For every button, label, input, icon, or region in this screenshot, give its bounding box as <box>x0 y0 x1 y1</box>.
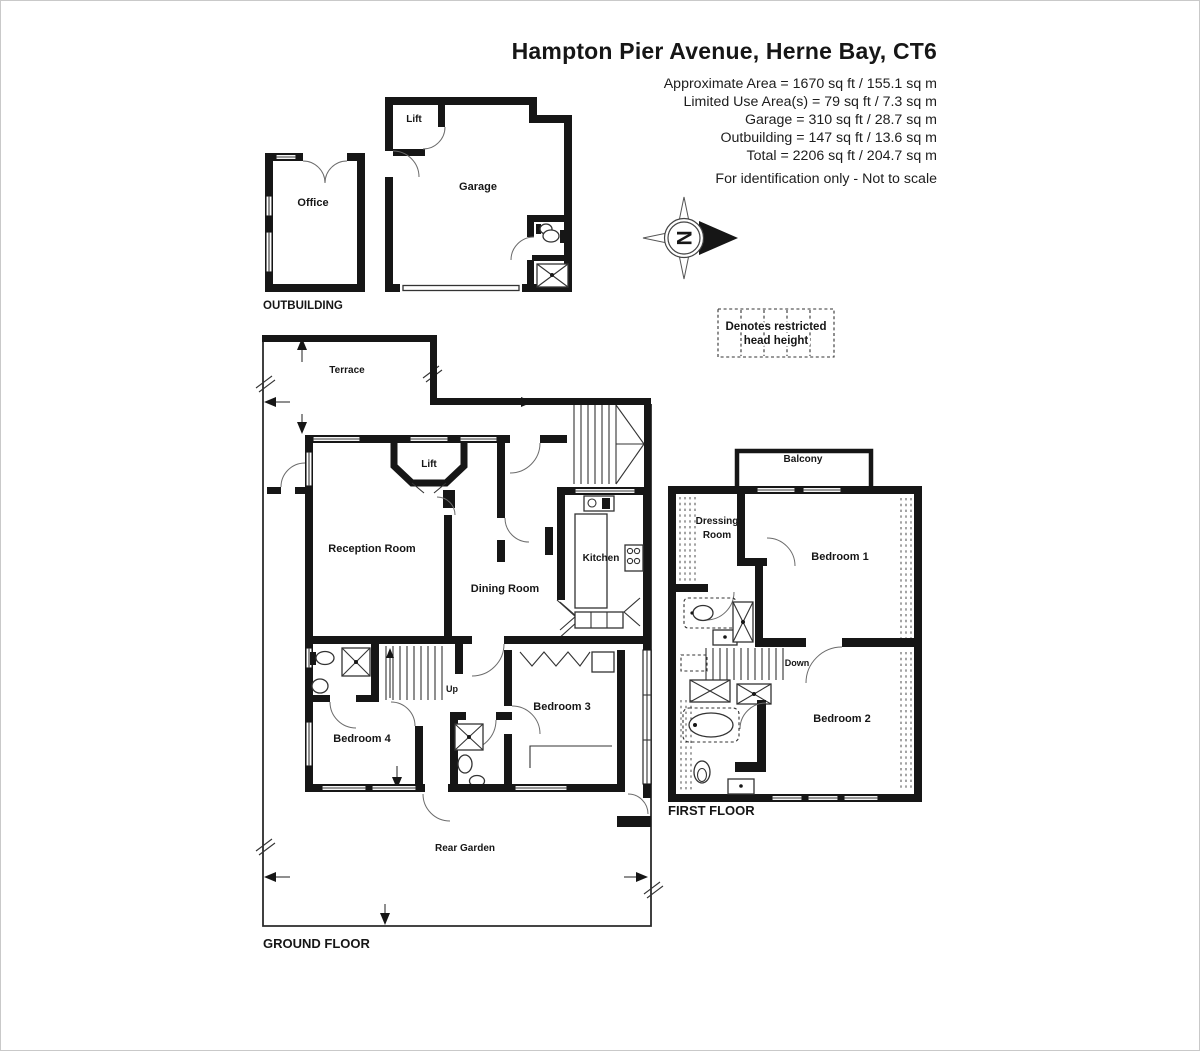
room-label-garage-lift: Lift <box>406 114 422 125</box>
room-label-balcony: Balcony <box>784 454 823 465</box>
bedroom2-area: Bedroom 2 <box>735 652 911 788</box>
garage-plan: Lift Garage <box>385 97 572 292</box>
bedroom3-area: Bedroom 3 <box>458 650 625 792</box>
bedroom4-area: Bedroom 4 <box>305 702 425 792</box>
room-label-bedroom4: Bedroom 4 <box>333 733 391 745</box>
legend-text-line2: head height <box>744 335 809 347</box>
first-floor-plan: Balcony Dressing Ro <box>668 451 922 818</box>
down-stairs: Down <box>681 648 809 704</box>
ground-floor-label: GROUND FLOOR <box>263 936 370 951</box>
floorplan-page: Hampton Pier Avenue, Herne Bay, CT6 Appr… <box>0 0 1200 1051</box>
compass-north-letter: N <box>672 230 695 245</box>
room-label-dressing-line1: Dressing <box>696 516 739 527</box>
bedroom1-area: Bedroom 1 <box>811 498 911 642</box>
ground-bathroom <box>305 644 379 728</box>
first-bathroom2 <box>681 700 754 794</box>
kitchen-area: Kitchen <box>557 487 651 650</box>
dressing-room-area: Dressing Room <box>680 486 795 588</box>
outbuilding-plan: Office OUTBUILDING <box>263 153 365 312</box>
first-bathroom <box>676 584 753 645</box>
room-label-terrace: Terrace <box>329 365 365 376</box>
compass: N <box>643 197 738 279</box>
dimension-arrows <box>264 338 648 925</box>
stairs-label-up: Up <box>446 684 458 694</box>
room-label-ground-lift: Lift <box>421 459 437 470</box>
room-label-reception: Reception Room <box>328 543 416 555</box>
up-stairs: Up <box>386 644 463 700</box>
room-label-bedroom2: Bedroom 2 <box>813 713 870 725</box>
garden-boundary <box>263 339 651 926</box>
room-label-bedroom3: Bedroom 3 <box>533 701 590 713</box>
first-floor-label: FIRST FLOOR <box>668 803 755 818</box>
stairs-label-down: Down <box>785 658 810 668</box>
external-stairs <box>574 398 651 490</box>
floor-plan-canvas: Office OUTBUILDING Lift Garage <box>0 0 1200 1051</box>
outbuilding-label: OUTBUILDING <box>263 300 343 312</box>
room-label-garage: Garage <box>459 181 497 193</box>
legend-text-line1: Denotes restricted <box>726 321 827 333</box>
legend-restricted-head-height: Denotes restricted head height <box>718 309 834 357</box>
ensuite-area <box>450 712 512 787</box>
room-label-dressing-line2: Room <box>703 530 731 541</box>
room-label-office: Office <box>297 197 328 209</box>
room-label-kitchen: Kitchen <box>583 553 620 564</box>
north-arrow-icon <box>699 221 738 255</box>
room-label-dining: Dining Room <box>471 583 540 595</box>
ground-floor-plan: Terrace <box>256 335 663 951</box>
room-label-bedroom1: Bedroom 1 <box>811 551 868 563</box>
room-label-rear-garden: Rear Garden <box>435 843 495 854</box>
